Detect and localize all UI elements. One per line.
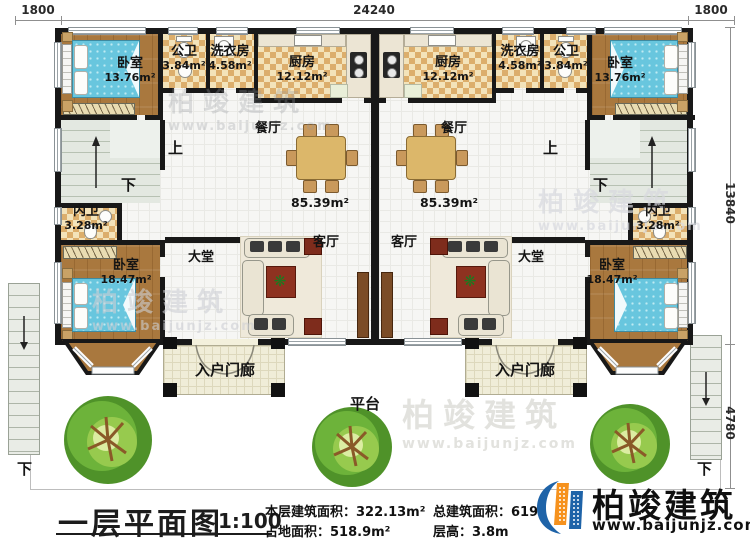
room-name: 卧室 xyxy=(590,57,650,72)
window xyxy=(168,27,198,35)
wall xyxy=(628,203,633,245)
pillow xyxy=(664,71,678,95)
stat-label: 本层建筑面积： xyxy=(265,505,356,520)
dim-top-width: 24240 xyxy=(344,3,404,17)
label-floor-area-right: 85.39m² xyxy=(417,196,481,210)
watermark: 柏竣建筑 www.baijunjz.com xyxy=(402,390,577,452)
wall xyxy=(585,120,590,170)
window xyxy=(502,27,534,35)
wall xyxy=(160,120,165,170)
dining-table xyxy=(406,136,456,180)
kitchen-cabinet xyxy=(404,84,422,98)
porch-column xyxy=(573,337,587,349)
window xyxy=(566,27,596,35)
stat-storey-height: 层高：3.8m xyxy=(433,521,509,540)
stair-landing-right xyxy=(590,120,640,158)
bed-headboard xyxy=(678,44,688,94)
stove-icon xyxy=(350,52,367,78)
window xyxy=(688,262,696,324)
room-label-living-right: 客厅 xyxy=(382,236,426,251)
window xyxy=(288,338,346,346)
wall xyxy=(55,240,165,245)
pillow xyxy=(74,283,88,305)
dim-tick xyxy=(725,27,735,28)
tree xyxy=(64,396,152,484)
room-area: 3.84m² xyxy=(160,60,208,73)
wall xyxy=(160,277,165,339)
stat-label: 占地面积： xyxy=(265,525,330,540)
plant-icon: ❋ xyxy=(270,271,290,291)
dim-tick xyxy=(15,16,16,25)
floor-plan-canvas: 1800 24240 1800 13840 4780 xyxy=(0,0,750,543)
room-label-kitchen-right: 厨房 12.12m² xyxy=(418,56,478,84)
tree xyxy=(312,407,392,487)
room-label-bedroom-bottom-right: 卧室 18.47m² xyxy=(580,259,644,287)
porch-column xyxy=(163,383,177,397)
brand-logo-icon xyxy=(533,477,587,537)
window xyxy=(688,42,696,88)
chair xyxy=(413,180,427,193)
porch-column xyxy=(163,337,177,349)
sink-icon xyxy=(294,35,322,46)
sofa-cushion xyxy=(286,241,300,252)
stat-total-area: 总建筑面积：619 xyxy=(433,501,538,520)
brand-url: www.baijunjz.com xyxy=(592,516,750,534)
dim-tick xyxy=(61,16,62,25)
room-label-public-bath-right: 公卫 3.84m² xyxy=(542,45,590,73)
dimension-line xyxy=(15,20,735,21)
floor-area-value: 85.39m² xyxy=(288,196,352,210)
stair-up-label: 上 xyxy=(168,137,183,158)
dim-tick xyxy=(725,344,735,345)
stat-value: 3.8m xyxy=(472,525,509,540)
window xyxy=(688,207,696,225)
room-label-laundry-right: 洗衣房 4.58m² xyxy=(494,45,546,73)
room-label-bedroom-bottom-left: 卧室 18.47m² xyxy=(95,259,157,287)
porch-column xyxy=(573,383,587,397)
exterior-stairs-right xyxy=(690,335,722,460)
room-label-laundry-left: 洗衣房 4.58m² xyxy=(204,45,256,73)
room-area: 18.47m² xyxy=(95,274,157,287)
stat-value: 518.9m² xyxy=(330,525,390,540)
room-name: 卧室 xyxy=(95,259,157,274)
stat-value: 322.13m² xyxy=(356,505,425,520)
sofa-cushion xyxy=(254,318,268,330)
dim-top-right: 1800 xyxy=(686,3,736,17)
sofa-cushion xyxy=(268,241,282,252)
nightstand xyxy=(677,330,688,341)
room-label-ensuite-left: 内卫 3.28m² xyxy=(62,205,110,233)
watermark-brand: 柏竣建筑 xyxy=(402,390,577,436)
room-label-dining-left: 餐厅 xyxy=(246,122,290,137)
stat-label: 总建筑面积： xyxy=(433,505,511,520)
window xyxy=(216,27,248,35)
wall xyxy=(408,98,492,103)
exterior-stair-down-label: 下 xyxy=(17,458,32,479)
pillow xyxy=(74,307,88,329)
room-name: 餐厅 xyxy=(432,122,476,137)
room-label-porch-right: 入户门廊 xyxy=(475,362,575,379)
tv-cabinet xyxy=(430,318,448,335)
pillow xyxy=(74,45,88,69)
pillow xyxy=(664,45,678,69)
porch-column xyxy=(271,337,285,349)
porch-column xyxy=(465,337,479,349)
sofa-cushion xyxy=(272,318,286,330)
window xyxy=(54,128,62,172)
room-area: 18.47m² xyxy=(580,274,644,287)
wall xyxy=(492,88,514,93)
label-floor-area-left: 85.39m² xyxy=(288,196,352,210)
bed-headboard xyxy=(62,282,72,328)
chair xyxy=(303,180,317,193)
room-label-hall-left: 大堂 xyxy=(178,251,224,266)
sofa xyxy=(488,260,510,316)
wall xyxy=(158,88,174,93)
room-name: 入户门廊 xyxy=(175,362,275,379)
room-label-bedroom-top-right: 卧室 13.76m² xyxy=(590,57,650,85)
porch-column xyxy=(271,383,285,397)
room-name: 大堂 xyxy=(178,251,224,266)
stat-land-area: 占地面积：518.9m² xyxy=(265,521,390,540)
room-label-hall-right: 大堂 xyxy=(508,251,554,266)
sink-icon xyxy=(428,35,456,46)
nightstand xyxy=(677,32,688,42)
window xyxy=(54,42,62,88)
nightstand xyxy=(62,100,73,112)
window xyxy=(604,27,682,35)
room-area: 13.76m² xyxy=(100,72,160,85)
platform-label: 平台 xyxy=(350,393,380,414)
door-leaf xyxy=(381,272,393,338)
room-label-bedroom-top-left: 卧室 13.76m² xyxy=(100,57,160,85)
pillow xyxy=(664,283,678,305)
window xyxy=(404,338,462,346)
nightstand xyxy=(677,100,688,112)
nightstand xyxy=(677,268,688,279)
sofa-cushion xyxy=(464,318,478,330)
room-name: 公卫 xyxy=(542,45,590,60)
dim-tick xyxy=(688,16,689,25)
room-name: 餐厅 xyxy=(246,122,290,137)
room-name: 卧室 xyxy=(100,57,160,72)
porch-column xyxy=(465,383,479,397)
kitchen-cabinet xyxy=(330,84,348,98)
stat-label: 层高： xyxy=(433,525,472,540)
wall xyxy=(160,245,165,257)
pillow xyxy=(74,71,88,95)
stair-landing-left xyxy=(110,120,160,158)
tv-cabinet xyxy=(304,318,322,335)
dim-platform-depth: 4780 xyxy=(723,396,737,450)
room-name: 大堂 xyxy=(508,251,554,266)
room-area: 12.12m² xyxy=(418,71,478,84)
room-area: 4.58m² xyxy=(204,60,256,73)
wardrobe xyxy=(633,246,687,259)
party-wall xyxy=(371,28,379,345)
wardrobe xyxy=(63,103,135,115)
room-name: 内卫 xyxy=(62,205,110,220)
wall xyxy=(613,115,695,120)
wall xyxy=(117,203,122,245)
tree xyxy=(590,404,670,484)
room-name: 厨房 xyxy=(418,56,478,71)
wall xyxy=(186,88,224,93)
dim-building-depth: 13840 xyxy=(723,172,737,234)
exterior-stair-down-label: 下 xyxy=(697,458,712,479)
title-underline xyxy=(56,533,272,535)
room-area: 4.58m² xyxy=(494,60,546,73)
room-name: 洗衣房 xyxy=(204,45,256,60)
room-name: 公卫 xyxy=(160,45,208,60)
floor-area-value: 85.39m² xyxy=(417,196,481,210)
wall xyxy=(526,88,564,93)
chair xyxy=(346,150,358,166)
bay-window xyxy=(65,341,160,373)
room-area: 3.28m² xyxy=(62,220,110,233)
bed-headboard xyxy=(62,44,72,94)
room-name: 卧室 xyxy=(580,259,644,274)
chair xyxy=(456,150,468,166)
watermark-url: www.baijunjz.com xyxy=(402,436,577,452)
bed-headboard xyxy=(678,282,688,328)
wall xyxy=(585,240,693,245)
chair xyxy=(435,180,449,193)
room-area: 3.84m² xyxy=(542,60,590,73)
room-name: 内卫 xyxy=(634,205,682,220)
room-area: 12.12m² xyxy=(272,71,332,84)
plant-icon: ❋ xyxy=(460,271,480,291)
sofa xyxy=(242,260,264,316)
bay-window xyxy=(590,341,685,373)
room-label-living-left: 客厅 xyxy=(304,236,348,251)
room-label-ensuite-right: 内卫 3.28m² xyxy=(634,205,682,233)
wardrobe xyxy=(63,246,117,259)
door-opening xyxy=(492,339,558,345)
room-name: 入户门廊 xyxy=(475,362,575,379)
wall xyxy=(585,245,590,257)
sofa-cushion xyxy=(448,241,462,252)
room-name: 客厅 xyxy=(382,236,426,251)
dim-top-left: 1800 xyxy=(13,3,63,17)
room-label-kitchen-left: 厨房 12.12m² xyxy=(272,56,332,84)
room-label-public-bath-left: 公卫 3.84m² xyxy=(160,45,208,73)
exterior-stairs-left xyxy=(8,283,40,455)
room-label-dining-right: 餐厅 xyxy=(432,122,476,137)
stair-down-label: 下 xyxy=(593,174,608,195)
wall xyxy=(55,115,137,120)
room-area: 3.28m² xyxy=(634,220,682,233)
room-label-porch-left: 入户门廊 xyxy=(175,362,275,379)
room-name: 洗衣房 xyxy=(494,45,546,60)
dining-table xyxy=(296,136,346,180)
wall xyxy=(576,88,592,93)
wall xyxy=(379,98,386,103)
wall xyxy=(236,88,258,93)
room-area: 13.76m² xyxy=(590,72,650,85)
window xyxy=(68,27,146,35)
room-name: 厨房 xyxy=(272,56,332,71)
sofa-cushion xyxy=(482,318,496,330)
chair xyxy=(325,180,339,193)
wall xyxy=(258,98,342,103)
stair-up-label: 上 xyxy=(543,137,558,158)
sofa-cushion xyxy=(466,241,480,252)
stat-floor-area: 本层建筑面积：322.13m² xyxy=(265,501,425,520)
window xyxy=(54,207,62,225)
stove-icon xyxy=(383,52,400,78)
window xyxy=(54,262,62,324)
sofa-cushion xyxy=(250,241,264,252)
stair-down-label: 下 xyxy=(121,174,136,195)
pillow xyxy=(664,307,678,329)
door-leaf xyxy=(357,272,369,338)
window xyxy=(688,128,696,172)
plan-title: 一层平面图 xyxy=(58,499,223,543)
room-name: 客厅 xyxy=(304,236,348,251)
tv-cabinet xyxy=(430,238,448,255)
dim-tick xyxy=(734,16,735,25)
door-opening xyxy=(192,339,258,345)
wall xyxy=(364,98,371,103)
sofa-cushion xyxy=(484,241,498,252)
